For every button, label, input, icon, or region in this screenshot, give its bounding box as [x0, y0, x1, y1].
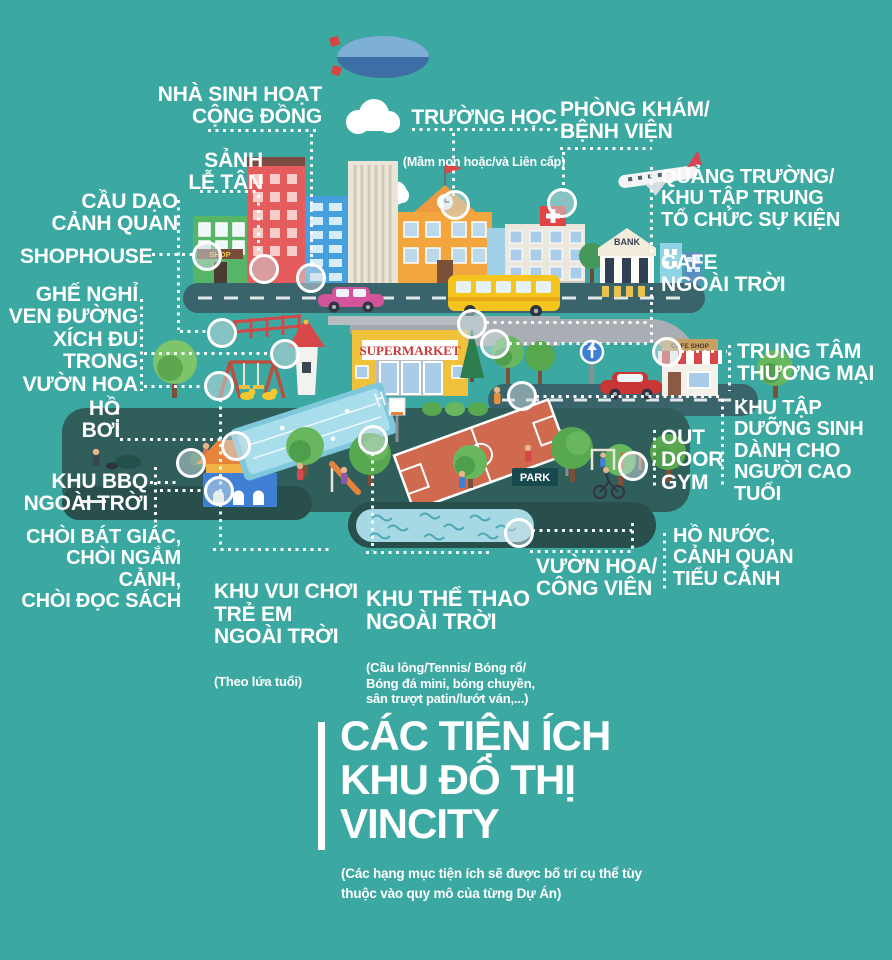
infographic-canvas: SHOP — [0, 0, 892, 960]
marker-choi — [204, 476, 234, 506]
marker-truong-hoc — [440, 190, 470, 220]
label-khu-the-thao-text: KHU THỂ THAO NGOÀI TRỜI — [366, 587, 535, 634]
connector-phong-kham-h — [560, 147, 652, 150]
connector-ghe-nghi-h1 — [144, 352, 272, 355]
connector-ho-nuoc-v — [663, 533, 666, 591]
label-khu-tap-duong-sinh: KHU TẬP DƯỠNG SINH DÀNH CHO NGƯỜI CAO TU… — [734, 398, 892, 505]
label-choi: CHÒI BÁT GIÁC, CHÒI NGẮM CẢNH, CHÒI ĐỌC … — [0, 527, 181, 613]
title-accent-bar — [318, 722, 325, 850]
connector-nha-sinh-hoat-v — [310, 134, 313, 264]
marker-shophouse — [192, 241, 222, 271]
label-cau-dao-canh-quan: CẦU DẠO CẢNH QUAN — [18, 191, 178, 236]
title-note: (Các hạng mục tiện ích sẽ được bố trí cụ… — [341, 864, 642, 905]
label-phong-kham-benh-vien: PHÒNG KHÁM/ BỆNH VIỆN — [560, 99, 709, 144]
connector-nha-sinh-hoat-h — [208, 129, 318, 132]
blimp-icon — [329, 36, 429, 78]
connector-khu-the-thao-v — [371, 453, 374, 551]
connector-ghe-nghi-h2 — [144, 385, 206, 388]
connector-choi-h — [160, 489, 206, 492]
tree — [153, 340, 197, 398]
connector-vuon-hoa-h2 — [530, 550, 634, 553]
label-vuon-hoa-cong-vien: VƯỜN HOA/ CÔNG VIÊN — [536, 556, 657, 601]
label-ghe-nghi-xich-du: GHẾ NGHỈ VEN ĐƯỜNG XÍCH ĐU TRONG VƯỜN HO… — [0, 284, 138, 396]
marker-cafe-ngoai-troi — [480, 329, 510, 359]
label-khu-vui-choi-sub: (Theo lứa tuổi) — [214, 674, 358, 690]
connector-khu-vui-choi-h — [213, 548, 333, 551]
connector-cafe-h — [509, 342, 649, 345]
marker-cau-dao — [207, 318, 237, 348]
connector-sanh-le-tan-v — [257, 195, 260, 251]
supermarket-sign-text: SUPERMARKET — [359, 343, 460, 358]
label-nha-sinh-hoat-cong-dong: NHÀ SINH HOẠT CỘNG ĐỒNG — [100, 84, 322, 129]
label-ho-boi: HỒ BƠI — [40, 398, 120, 443]
bushes — [422, 402, 488, 416]
hospital-building — [487, 206, 585, 285]
marker-khu-tap-duong-sinh — [507, 381, 537, 411]
connector-khu-bbq-choi-v — [154, 467, 157, 525]
marker-xich-du — [204, 371, 234, 401]
red-bridge — [233, 314, 301, 340]
marker-khu-bbq — [176, 448, 206, 478]
page-title: CÁC TIỆN ÍCH KHU ĐÔ THỊ VINCITY — [340, 714, 610, 846]
connector-khu-tap-h — [536, 395, 721, 398]
label-khu-bbq: KHU BBQ NGOÀI TRỜI — [10, 471, 148, 516]
park-sign-text: PARK — [520, 472, 550, 484]
label-outdoor-gym: OUT DOOR GYM — [661, 427, 723, 494]
bank-sign-text: BANK — [614, 237, 640, 247]
marker-outdoor-gym — [618, 451, 648, 481]
marker-ghe-nghi — [270, 339, 300, 369]
label-truong-hoc-sub: (Mầm non hoặc/và Liên cấp) — [398, 155, 570, 170]
connector-khu-vui-choi-v — [219, 399, 222, 549]
label-khu-the-thao-sub: (Cầu lông/Tennis/ Bóng rổ/ Bóng đá mini,… — [366, 660, 535, 707]
park-sign: PARK — [512, 468, 558, 486]
upper-road — [183, 283, 705, 313]
marker-khu-the-thao — [358, 425, 388, 455]
marker-ho-boi — [221, 431, 251, 461]
label-khu-vui-choi-text: KHU VUI CHƠI TRẺ EM NGOÀI TRỜI — [214, 581, 358, 648]
label-khu-vui-choi: KHU VUI CHƠI TRẺ EM NGOÀI TRỜI (Theo lứa… — [214, 559, 358, 712]
connector-gym-v — [653, 430, 656, 490]
connector-vuon-hoa-v — [631, 523, 634, 551]
label-sanh-le-tan: SẢNH LỄ TÂN — [178, 150, 263, 195]
connector-trung-tam-v — [728, 345, 731, 391]
connector-shophouse-h — [152, 253, 194, 256]
connector-ho-boi-h — [120, 438, 222, 441]
connector-trung-tam-h — [681, 350, 727, 353]
label-ho-nuoc: HỒ NƯỚC, CẢNH QUAN TIỂU CẢNH — [673, 526, 793, 590]
connector-ghe-nghi-v — [140, 299, 143, 391]
marker-vuon-hoa — [504, 518, 534, 548]
marker-nha-sinh-hoat — [296, 263, 326, 293]
label-truong-hoc: TRƯỜNG HỌC (Mầm non hoặc/và Liên cấp) — [398, 85, 570, 193]
label-truong-hoc-text: TRƯỜNG HỌC — [398, 107, 570, 129]
bank-building: BANK — [596, 228, 658, 287]
label-cafe-ngoai-troi: CAFE NGOÀI TRỜI — [661, 252, 785, 297]
cloud-icon — [346, 99, 400, 134]
cream-tower-building — [348, 161, 398, 285]
connector-khu-the-thao-h — [366, 551, 490, 554]
label-quang-truong: QUẢNG TRƯỜNG/ KHU TẬP TRUNG TỔ CHỨC SỰ K… — [661, 167, 840, 231]
connector-cau-dao-h — [180, 330, 210, 333]
label-shophouse: SHOPHOUSE — [20, 246, 150, 268]
label-trung-tam-thuong-mai: TRUNG TÂM THƯƠNG MẠI — [737, 341, 874, 386]
pond — [348, 502, 656, 548]
marker-trung-tam — [652, 337, 682, 367]
marker-sanh-le-tan — [249, 254, 279, 284]
connector-quang-truong-h — [486, 321, 650, 324]
connector-right-column-v — [650, 167, 653, 347]
traffic-sign-icon — [581, 341, 603, 388]
connector-vuon-hoa-h1 — [532, 529, 632, 532]
label-khu-the-thao: KHU THỂ THAO NGOÀI TRỜI (Cầu lông/Tennis… — [366, 563, 535, 730]
